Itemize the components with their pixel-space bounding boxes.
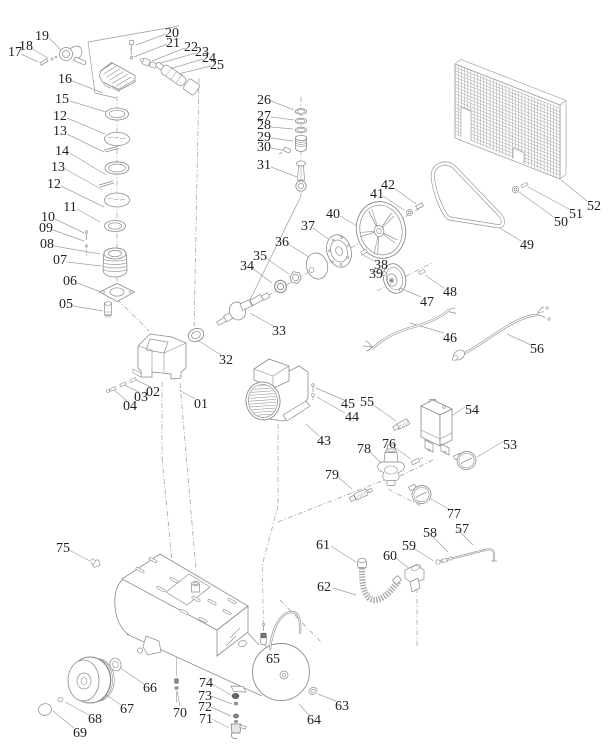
- svg-text:21: 21: [166, 36, 180, 51]
- svg-text:10: 10: [41, 210, 55, 225]
- svg-text:73: 73: [198, 689, 212, 704]
- svg-text:49: 49: [520, 238, 534, 253]
- svg-text:26: 26: [257, 93, 271, 108]
- svg-text:69: 69: [73, 726, 87, 741]
- svg-text:48: 48: [443, 285, 457, 300]
- svg-text:58: 58: [423, 526, 437, 541]
- svg-text:08: 08: [40, 237, 54, 252]
- svg-text:13: 13: [53, 124, 67, 139]
- svg-text:51: 51: [569, 207, 583, 222]
- svg-text:63: 63: [335, 699, 349, 714]
- svg-text:15: 15: [55, 92, 69, 107]
- svg-text:65: 65: [266, 652, 280, 667]
- svg-text:60: 60: [383, 549, 397, 564]
- svg-text:12: 12: [47, 177, 61, 192]
- svg-text:35: 35: [253, 249, 267, 264]
- svg-text:40: 40: [326, 207, 340, 222]
- svg-text:74: 74: [199, 676, 213, 691]
- svg-text:34: 34: [240, 259, 254, 274]
- svg-text:67: 67: [120, 702, 134, 717]
- svg-text:12: 12: [53, 109, 67, 124]
- svg-text:66: 66: [143, 681, 157, 696]
- svg-text:62: 62: [317, 580, 331, 595]
- svg-text:14: 14: [55, 144, 69, 159]
- svg-text:05: 05: [59, 297, 73, 312]
- svg-text:32: 32: [219, 353, 233, 368]
- svg-text:46: 46: [443, 331, 457, 346]
- svg-text:53: 53: [503, 438, 517, 453]
- svg-text:45: 45: [341, 397, 355, 412]
- svg-text:59: 59: [402, 539, 416, 554]
- svg-text:18: 18: [19, 39, 33, 54]
- svg-text:30: 30: [257, 140, 271, 155]
- svg-text:11: 11: [63, 200, 76, 215]
- svg-text:31: 31: [257, 158, 271, 173]
- svg-text:76: 76: [382, 437, 396, 452]
- svg-text:79: 79: [325, 468, 339, 483]
- svg-text:57: 57: [455, 522, 469, 537]
- svg-text:52: 52: [587, 199, 601, 214]
- svg-text:75: 75: [56, 541, 70, 556]
- svg-text:50: 50: [554, 215, 568, 230]
- svg-text:01: 01: [194, 397, 208, 412]
- svg-text:44: 44: [345, 410, 359, 425]
- svg-text:37: 37: [301, 219, 315, 234]
- svg-text:13: 13: [51, 160, 65, 175]
- svg-text:25: 25: [210, 58, 224, 73]
- svg-text:61: 61: [316, 538, 330, 553]
- svg-text:06: 06: [63, 274, 77, 289]
- svg-text:42: 42: [381, 178, 395, 193]
- svg-text:55: 55: [360, 395, 374, 410]
- svg-text:70: 70: [173, 706, 187, 721]
- svg-text:54: 54: [465, 403, 479, 418]
- svg-text:02: 02: [146, 385, 160, 400]
- svg-text:64: 64: [307, 713, 321, 728]
- svg-text:56: 56: [530, 342, 544, 357]
- svg-text:07: 07: [53, 253, 67, 268]
- svg-text:16: 16: [58, 72, 72, 87]
- svg-text:43: 43: [317, 434, 331, 449]
- svg-text:04: 04: [123, 399, 137, 414]
- svg-text:78: 78: [357, 442, 371, 457]
- svg-text:36: 36: [275, 235, 289, 250]
- svg-text:19: 19: [35, 29, 49, 44]
- svg-text:68: 68: [88, 712, 102, 727]
- svg-text:39: 39: [369, 267, 383, 282]
- svg-text:33: 33: [272, 324, 286, 339]
- svg-text:47: 47: [420, 295, 434, 310]
- svg-text:77: 77: [447, 507, 461, 522]
